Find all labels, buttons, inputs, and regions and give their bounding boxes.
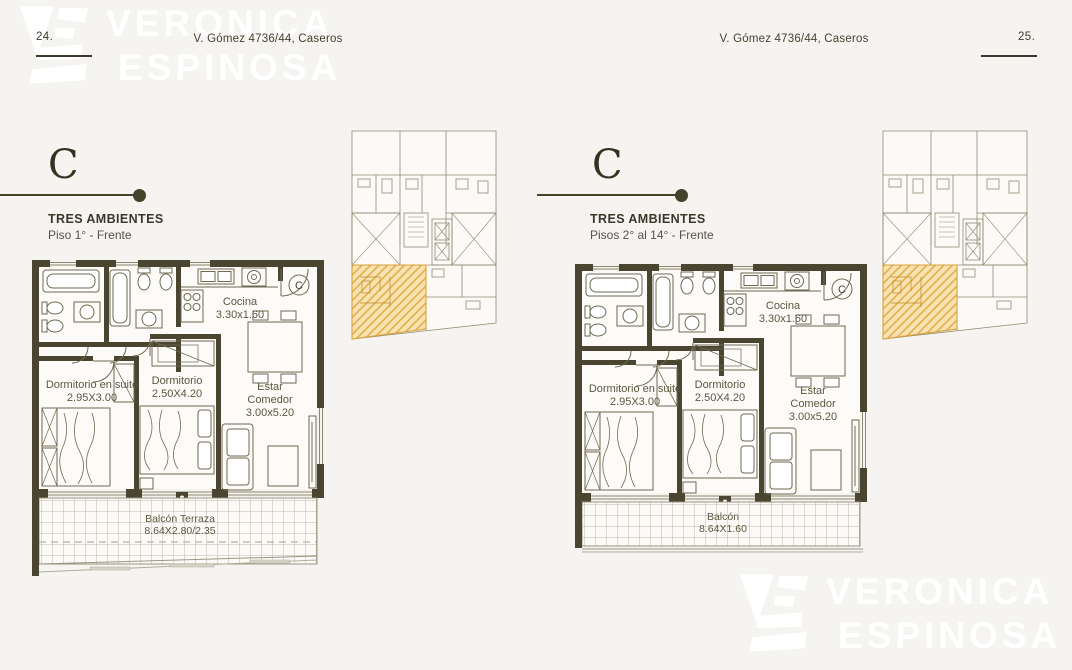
right-suite-name: Dormitorio en suite	[589, 383, 681, 395]
left-estar-name1: Estar	[257, 381, 283, 393]
left-unit-type: TRES AMBIENTES	[48, 212, 164, 226]
left-entry-tag: C	[295, 280, 303, 292]
left-cocina-name: Cocina	[223, 296, 258, 308]
right-title-rule-dot	[675, 189, 688, 202]
brand-watermark-bottom: VERONICA ESPINOSA	[738, 570, 1061, 658]
left-suite-name: Dormitorio en suite	[46, 379, 138, 391]
right-unit-type: TRES AMBIENTES	[590, 212, 706, 226]
left-balcony	[32, 498, 317, 576]
right-estar-name1: Estar	[800, 385, 826, 397]
right-floor-plan: C Cocina 3.30x1.60 Dormitorio en suite 2…	[573, 262, 873, 558]
brand-watermark-top: VERONICA ESPINOSA	[18, 2, 341, 90]
right-key-plan	[877, 127, 1033, 345]
right-cocina-name: Cocina	[766, 300, 801, 312]
right-page-number-rule	[981, 55, 1037, 57]
left-floor-plan: C Cocina 3.30x1.60 Dormitorio en suite 2…	[30, 258, 330, 588]
left-suite-dims: 2.95X3.00	[67, 392, 117, 404]
left-balcon-dims: 8.64X2.80/2.35	[144, 525, 215, 537]
left-header-address: V. Gómez 4736/44, Caseros	[193, 33, 342, 45]
right-unit-letter: C	[592, 142, 623, 188]
right-dorm-dims: 2.50X4.20	[695, 392, 745, 404]
right-balcon-name: Balcón	[707, 511, 739, 523]
right-unit-floors: Pisos 2° al 14° - Frente	[590, 228, 714, 242]
left-balcon-name: Balcón Terraza	[145, 513, 215, 525]
watermark-word-2: ESPINOSA	[838, 614, 1061, 658]
veronica-espinosa-logo-icon	[738, 570, 810, 658]
right-page-number: 25.	[1018, 31, 1035, 43]
left-estar-dims: 3.00x5.20	[246, 407, 294, 419]
left-title-rule-dot	[133, 189, 146, 202]
left-unit-floors: Piso 1° - Frente	[48, 228, 132, 242]
right-suite-dims: 2.95X3.00	[610, 396, 660, 408]
right-balcon-dims: 8.64X1.60	[699, 523, 747, 535]
left-unit-letter: C	[48, 142, 79, 188]
watermark-word-1: VERONICA	[826, 570, 1061, 614]
watermark-word-2: ESPINOSA	[118, 46, 341, 90]
left-dorm-dims: 2.50X4.20	[152, 388, 202, 400]
left-title-rule	[0, 194, 140, 196]
right-header-address: V. Gómez 4736/44, Caseros	[719, 33, 868, 45]
right-estar-name2: Comedor	[790, 398, 836, 410]
right-dorm-name: Dormitorio	[695, 379, 746, 391]
left-estar-name2: Comedor	[247, 394, 293, 406]
left-page-number: 24.	[36, 31, 53, 43]
left-page-number-rule	[36, 55, 92, 57]
left-dorm-name: Dormitorio	[152, 375, 203, 387]
right-estar-dims: 3.00x5.20	[789, 411, 837, 423]
left-cocina-dims: 3.30x1.60	[216, 309, 264, 321]
right-entry-tag: C	[838, 284, 846, 296]
left-key-plan	[346, 127, 502, 345]
veronica-espinosa-logo-icon	[18, 2, 90, 90]
right-cocina-dims: 3.30x1.60	[759, 313, 807, 325]
right-title-rule	[537, 194, 682, 196]
